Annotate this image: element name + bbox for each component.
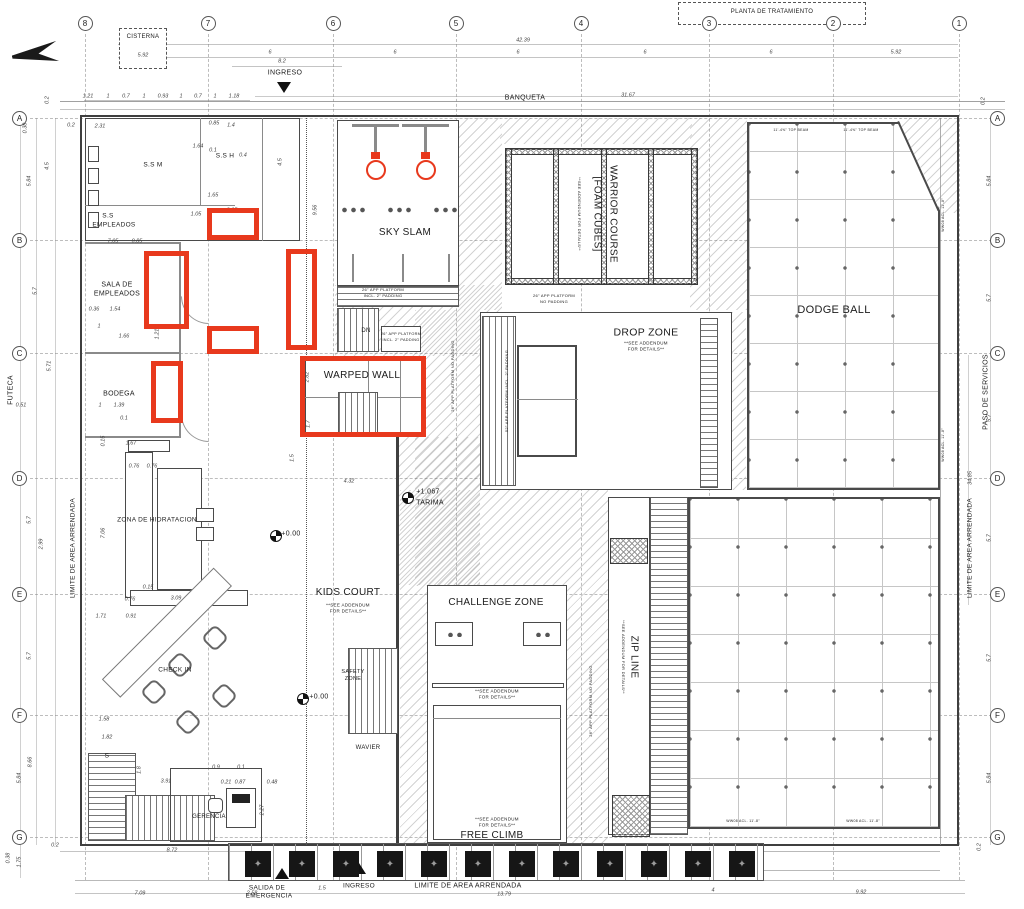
dimension-text: 1.18	[229, 94, 240, 100]
dimension-text: 0.2	[977, 843, 983, 851]
toilet-fixture	[88, 168, 99, 184]
dimension-text: 0.7	[122, 94, 130, 100]
zip-platform-frame	[612, 795, 650, 837]
dimension-text: 1.21	[83, 94, 94, 100]
dimension-text: 5.7	[27, 516, 33, 524]
toilet-fixture	[88, 212, 99, 228]
equipment	[196, 508, 214, 522]
wall	[85, 205, 235, 206]
lease-boundary-line	[306, 118, 307, 845]
pad-dots	[534, 631, 551, 637]
equipment	[196, 527, 214, 541]
support-post	[352, 254, 354, 282]
zip-platform-frame	[610, 538, 648, 564]
dim-line	[20, 118, 21, 878]
grid-bubble-row: F	[990, 708, 1005, 723]
grid-line-col	[959, 34, 960, 880]
wall	[400, 358, 401, 434]
foam-rail	[691, 148, 698, 285]
dimension-text: 6	[516, 50, 519, 56]
dimension-text: 1.5	[318, 886, 326, 892]
grid-bubble-col: 4	[574, 16, 589, 31]
dim-line	[36, 118, 37, 845]
dimension-text: 8.2	[278, 59, 286, 65]
grid-bubble-row: E	[990, 587, 1005, 602]
platform-slats	[482, 316, 516, 486]
dimension-text: 1	[213, 94, 216, 100]
dimension-text: 34.85	[968, 471, 974, 485]
spring-dots	[386, 206, 414, 214]
dimension-text: 6	[393, 50, 396, 56]
stairs	[700, 318, 718, 488]
app-platform	[337, 286, 459, 307]
grid-bubble-col: 6	[326, 16, 341, 31]
dimension-text: 0.93	[158, 94, 169, 100]
grid-bubble-row: B	[990, 233, 1005, 248]
dodge-ball-court	[747, 122, 940, 490]
basketball-hoop	[416, 160, 436, 180]
wall	[85, 242, 181, 244]
ingreso-top-label: INGRESO	[268, 69, 302, 76]
stairs	[338, 392, 378, 434]
dimension-text: 0.38	[23, 123, 29, 134]
foam-rail	[505, 148, 512, 285]
dimension-text: 0.51	[16, 403, 27, 409]
dimension-text: 42.39	[516, 38, 530, 44]
basketball-hoop	[366, 160, 386, 180]
futeca-label: FUTECA	[7, 375, 14, 405]
pad-dots	[446, 631, 463, 637]
drop-zone-frame	[517, 345, 577, 457]
ingreso-bottom-label: INGRESO	[343, 884, 375, 891]
grid-bubble-row: A	[990, 111, 1005, 126]
free-climb-box	[433, 705, 561, 840]
wall	[85, 352, 181, 354]
wall	[200, 118, 201, 206]
chair	[208, 798, 223, 813]
monitor	[232, 794, 250, 803]
level-marker-icon	[270, 530, 282, 542]
grid-bubble-row: C	[990, 346, 1005, 361]
grid-bubble-row: D	[990, 471, 1005, 486]
grid-bubble-col: 8	[78, 16, 93, 31]
planter-strip	[228, 843, 764, 881]
limite-left-label: LIMITE DE AREA ARRENDADA	[71, 498, 78, 598]
north-arrow-icon	[11, 41, 60, 69]
spring-dots	[340, 206, 368, 214]
foam-divider	[648, 148, 654, 285]
dimension-text: 0.2	[45, 96, 51, 104]
sky-slam-court	[337, 120, 459, 286]
entry-arrow-icon	[277, 82, 291, 93]
grid-bubble-row: G	[990, 830, 1005, 845]
exit-arrow-icon	[275, 868, 289, 879]
cisterna-box	[119, 28, 167, 69]
dimension-text: 8.66	[28, 757, 34, 768]
support-post	[402, 254, 404, 282]
app-platform-box	[381, 326, 421, 352]
dimension-text: 1	[106, 94, 109, 100]
dim-line	[990, 118, 991, 845]
level-marker-icon	[297, 693, 309, 705]
dimension-text: 6	[769, 50, 772, 56]
dimension-text: 6	[268, 50, 271, 56]
challenge-bar	[432, 683, 564, 688]
platform-slats	[650, 497, 688, 835]
trampoline-court	[688, 497, 940, 829]
banqueta-line	[60, 109, 1005, 110]
service-corridor-wall	[940, 118, 941, 845]
banqueta-line	[60, 101, 1005, 102]
dimension-text: 5.92	[891, 50, 902, 56]
hoop-backboard	[371, 152, 380, 159]
grid-bubble-col: 1	[952, 16, 967, 31]
entry-arrow-icon	[352, 863, 366, 874]
foam-divider	[601, 148, 607, 285]
dim-line	[232, 66, 342, 67]
frame-bar	[433, 718, 561, 719]
counter	[128, 440, 170, 452]
limite-bottom-label: LIMITE DE AREA ARRENDADA	[414, 882, 521, 889]
dimension-text: 0.2	[67, 123, 75, 129]
level-marker-icon	[402, 492, 414, 504]
safety-zone-slats	[348, 648, 398, 734]
restrooms-block	[85, 118, 300, 241]
dimension-text: 1	[142, 94, 145, 100]
paso-servicios-label: PASO DE SERVICIOS	[982, 354, 989, 430]
wall	[262, 118, 263, 241]
dimension-text: 5.71	[47, 361, 53, 372]
sidewalk-line	[763, 851, 940, 852]
dim-line	[968, 355, 969, 605]
dimension-text: 5.7	[27, 652, 33, 660]
foam-divider	[553, 148, 559, 285]
dim-line	[118, 57, 958, 58]
sidewalk-line	[763, 870, 940, 871]
dimension-text: 2.99	[39, 539, 45, 550]
floor-plan: 87654321AABBCCDDEEFFGGCISTERNAPLANTA DE …	[0, 0, 1024, 909]
frame-bar	[517, 399, 578, 400]
grid-bubble-col: 5	[449, 16, 464, 31]
toilet-fixture	[88, 146, 99, 162]
dimension-text: 5.84	[27, 176, 33, 187]
dimension-text: 0.38	[6, 853, 12, 864]
dimension-text: 1	[179, 94, 182, 100]
wall	[179, 242, 181, 438]
dimension-text: 6	[643, 50, 646, 56]
dim-line	[75, 893, 965, 894]
wall	[85, 436, 181, 438]
dim-line	[55, 118, 56, 845]
dimension-text: 0.7	[194, 94, 202, 100]
kids-court-wall	[396, 437, 399, 846]
grid-bubble-col: 7	[201, 16, 216, 31]
spring-dots	[432, 206, 460, 214]
dim-line	[255, 96, 958, 97]
planta-tratamiento-box	[678, 2, 866, 25]
plan-label: EMERGENCIA	[246, 894, 293, 901]
toilet-fixture	[88, 190, 99, 206]
dim-line	[118, 44, 958, 45]
stairs-dn	[337, 308, 379, 352]
dimension-text: 4.5	[45, 162, 51, 170]
support-post	[448, 254, 450, 282]
salida-emergencia-label: SALIDA DE	[249, 886, 285, 893]
counter	[125, 452, 153, 598]
hoop-backboard	[421, 152, 430, 159]
